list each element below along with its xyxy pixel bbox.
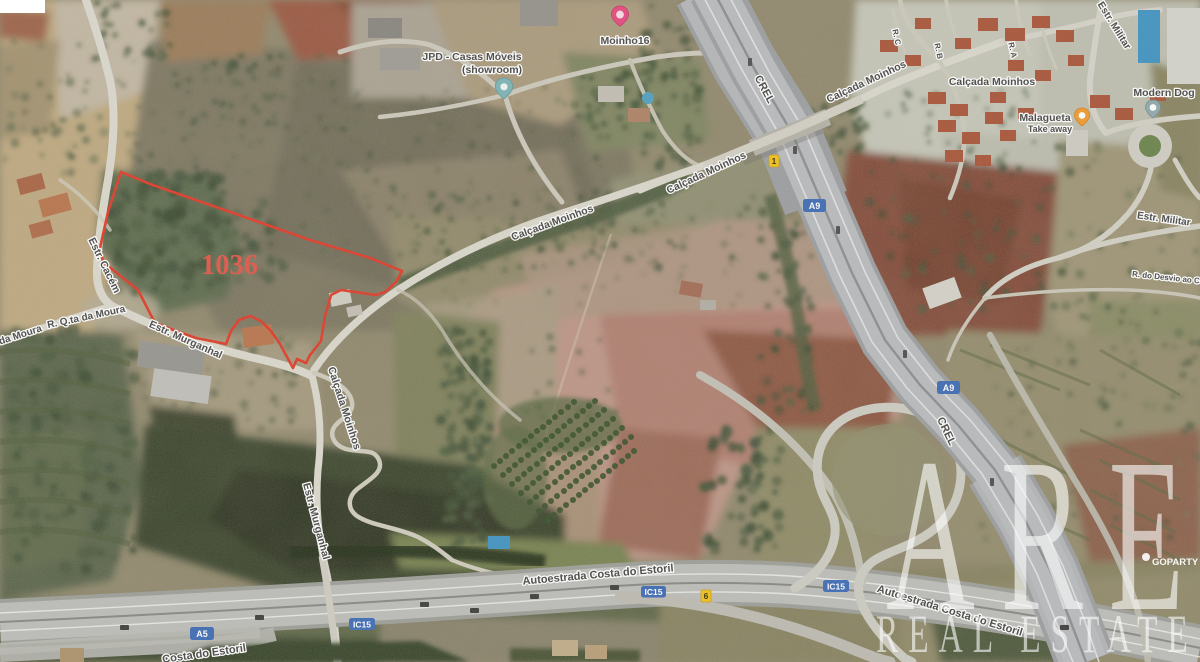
svg-text:REAL ESTATE: REAL ESTATE — [876, 604, 1198, 662]
